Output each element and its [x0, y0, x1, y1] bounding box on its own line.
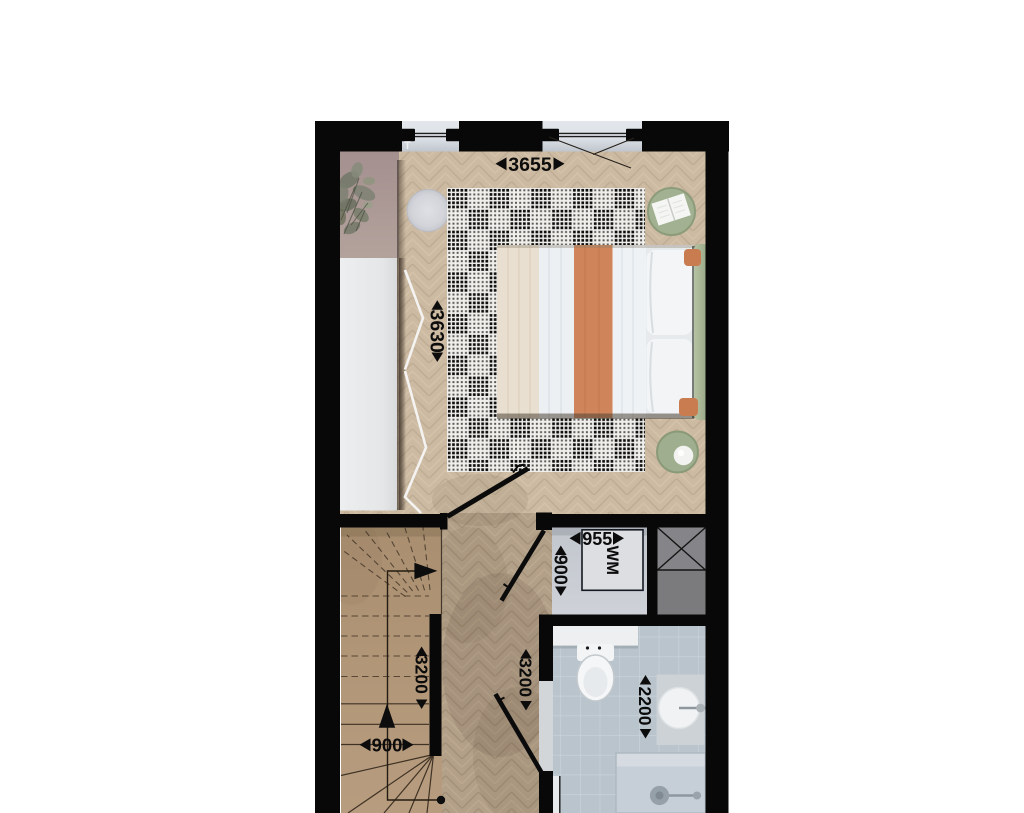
- svg-text:WM: WM: [603, 546, 621, 575]
- svg-text:2200: 2200: [635, 687, 655, 726]
- svg-text:3630: 3630: [425, 310, 447, 354]
- svg-text:900: 900: [372, 734, 403, 755]
- svg-text:3200: 3200: [516, 658, 536, 697]
- svg-text:3200: 3200: [411, 655, 431, 694]
- svg-text:900: 900: [550, 555, 570, 585]
- svg-text:3655: 3655: [508, 154, 552, 176]
